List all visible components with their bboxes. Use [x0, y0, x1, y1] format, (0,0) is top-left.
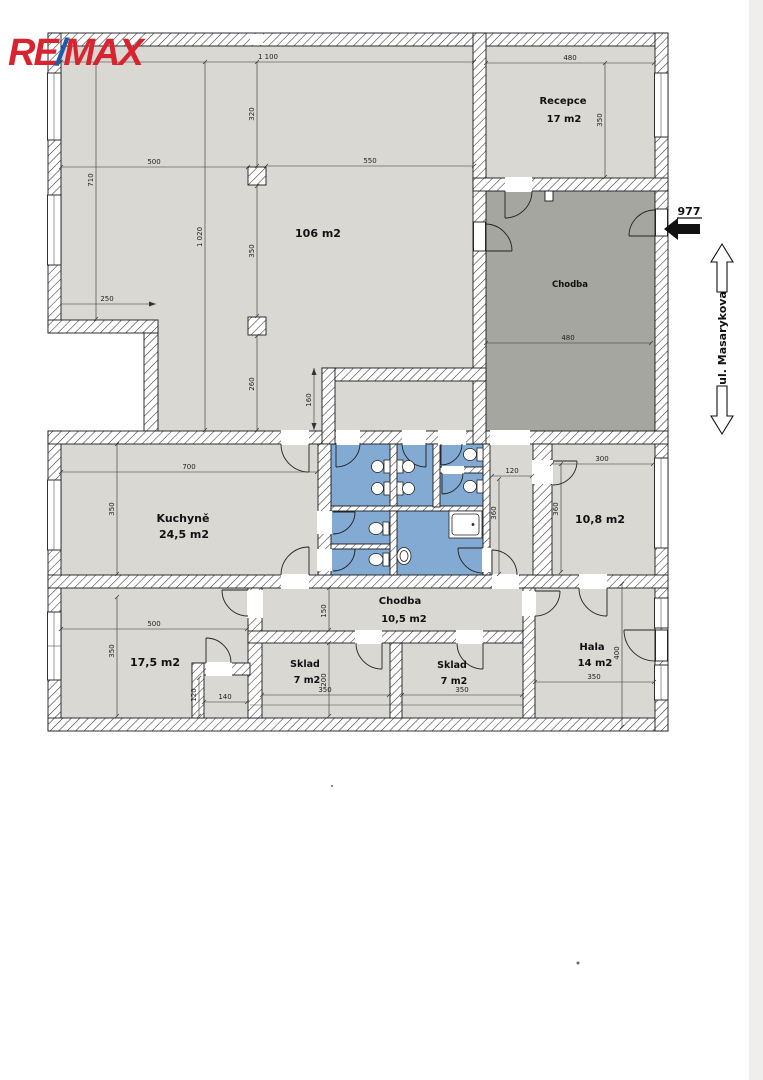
bathtub: [449, 511, 482, 538]
label-hala-area: 14 m2: [578, 658, 613, 669]
dim-chodba-width: 480: [561, 334, 574, 342]
dim-col-span: 350: [248, 244, 256, 257]
entrance-number: 977: [678, 205, 701, 218]
street-arrow-down-icon: [711, 386, 733, 434]
dim-sklad-right-width: 350: [455, 686, 468, 694]
dim-right-width: 550: [363, 157, 376, 165]
label-sklad-right-name: Sklad: [437, 660, 467, 671]
footprint-notch: [18, 333, 144, 431]
dim-closet-height: 120: [190, 688, 198, 701]
dim-room108-width: 300: [595, 455, 608, 463]
toilet: [397, 460, 415, 473]
toilet: [464, 480, 484, 493]
dim-recepce-width: 480: [563, 54, 576, 62]
wc-cell: [440, 472, 483, 506]
street-annotation: ul. Masarykova: [711, 244, 733, 434]
hala-door-panel: [656, 630, 668, 661]
label-kuchyne-area: 24,5 m2: [159, 528, 209, 541]
dim-room108-height: 360: [552, 502, 560, 515]
sink: [397, 548, 411, 565]
label-hala-name: Hala: [579, 642, 604, 653]
dim-room175-height: 350: [108, 644, 116, 657]
dim-room175-width: 500: [147, 620, 160, 628]
door-panel: [474, 222, 486, 251]
floor-plan: 1 100 320 500 550 710 1 020 350 260 250 …: [0, 0, 763, 1080]
toilet: [397, 482, 415, 495]
dim-hall-height: 1 020: [196, 227, 204, 247]
dim-kuchyne-width: 700: [182, 463, 195, 471]
label-recepce-name: Recepce: [539, 96, 586, 107]
entrance-arrow-icon: [664, 218, 700, 240]
toilet: [464, 448, 484, 461]
room-chodba-upper: [486, 191, 655, 431]
dim-left-height: 710: [87, 173, 95, 186]
remax-logo-text: RE/MAX: [8, 32, 146, 74]
label-sklad-left-name: Sklad: [290, 659, 320, 670]
dim-sklad-height: 200: [320, 673, 328, 686]
room-fills: [18, 33, 668, 731]
toilet: [372, 482, 391, 495]
label-chodba-lower-area: 10,5 m2: [381, 614, 427, 625]
window: [48, 73, 62, 140]
label-main-hall: 106 m2: [295, 227, 341, 240]
scan-dot: [331, 785, 333, 787]
window: [48, 480, 62, 550]
window: [655, 458, 669, 548]
dim-lower-span: 260: [248, 377, 256, 390]
street-arrow-up-icon: [711, 244, 733, 292]
entrance-door-panel: [656, 209, 668, 236]
label-room175: 17,5 m2: [130, 656, 180, 669]
scan-edge-strip: [749, 0, 763, 1080]
label-sklad-left-area: 7 m2: [294, 675, 320, 686]
column: [248, 167, 266, 185]
remax-logo: RE/MAX: [8, 32, 146, 74]
dim-wc-width: 120: [505, 467, 518, 475]
floor-plan-page: 1 100 320 500 550 710 1 020 350 260 250 …: [0, 0, 763, 1080]
label-recepce-area: 17 m2: [547, 114, 582, 125]
dim-notch-width: 250: [100, 295, 113, 303]
window: [655, 598, 669, 628]
label-chodba-lower-name: Chodba: [379, 596, 421, 607]
toilet: [372, 460, 391, 473]
dim-upper-height: 320: [248, 107, 256, 120]
dim-left-width: 500: [147, 158, 160, 166]
dim-hala-width: 350: [587, 673, 600, 681]
dim-recepce-height: 350: [596, 113, 604, 126]
window: [48, 612, 62, 680]
scan-dot: [577, 962, 580, 965]
label-room108: 10,8 m2: [575, 513, 625, 526]
window: [48, 195, 62, 265]
entrance-marker: 977: [664, 205, 702, 240]
label-chodba-upper: Chodba: [552, 280, 588, 290]
dim-kuchyne-height: 350: [108, 502, 116, 515]
window: [655, 665, 669, 700]
label-sklad-right-area: 7 m2: [441, 676, 467, 687]
dim-top-width: 1 100: [258, 53, 278, 61]
dim-vestibule-height: 160: [305, 393, 313, 406]
dim-chodba-lower-height: 150: [320, 604, 328, 617]
dim-hala-height: 400: [613, 646, 621, 659]
dim-closet-width: 140: [218, 693, 231, 701]
wc-cell: [397, 444, 433, 506]
wall-stub: [545, 191, 553, 201]
street-name: ul. Masarykova: [716, 291, 729, 385]
label-kuchyne-name: Kuchyně: [157, 512, 210, 525]
toilet: [369, 553, 389, 566]
column: [248, 317, 266, 335]
toilet: [369, 522, 389, 535]
wc-cell: [331, 444, 390, 506]
dim-wc-height: 360: [490, 506, 498, 519]
window: [655, 73, 669, 137]
